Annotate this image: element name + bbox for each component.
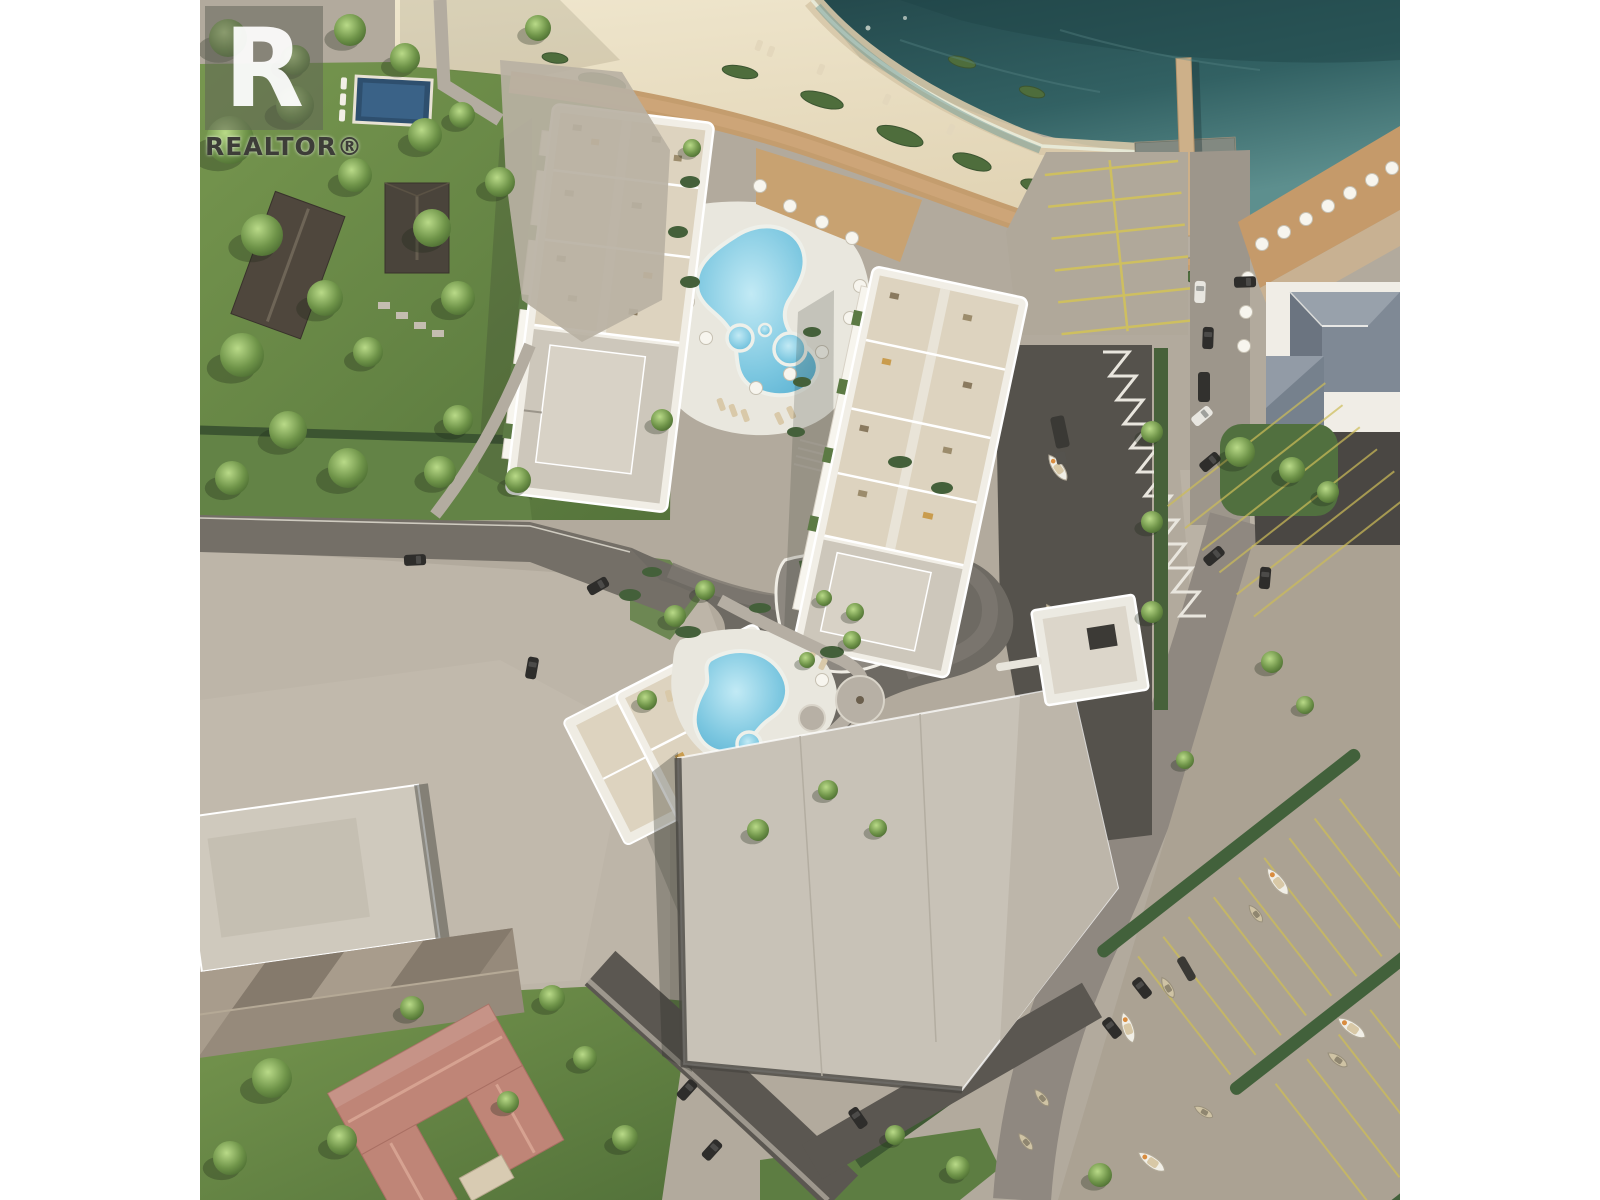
swimmer-dot (903, 16, 907, 20)
site-plan-rendering (200, 0, 1400, 1200)
swimmer-dot (866, 26, 871, 31)
hot-tub (727, 325, 753, 351)
restaurant-building (1266, 282, 1400, 432)
beach-parking (1006, 152, 1195, 338)
aerial-render-page: R REALTOR® (0, 0, 1600, 1200)
aerial-render-content: R REALTOR® (200, 0, 1400, 1200)
amenity-building (1031, 594, 1149, 705)
